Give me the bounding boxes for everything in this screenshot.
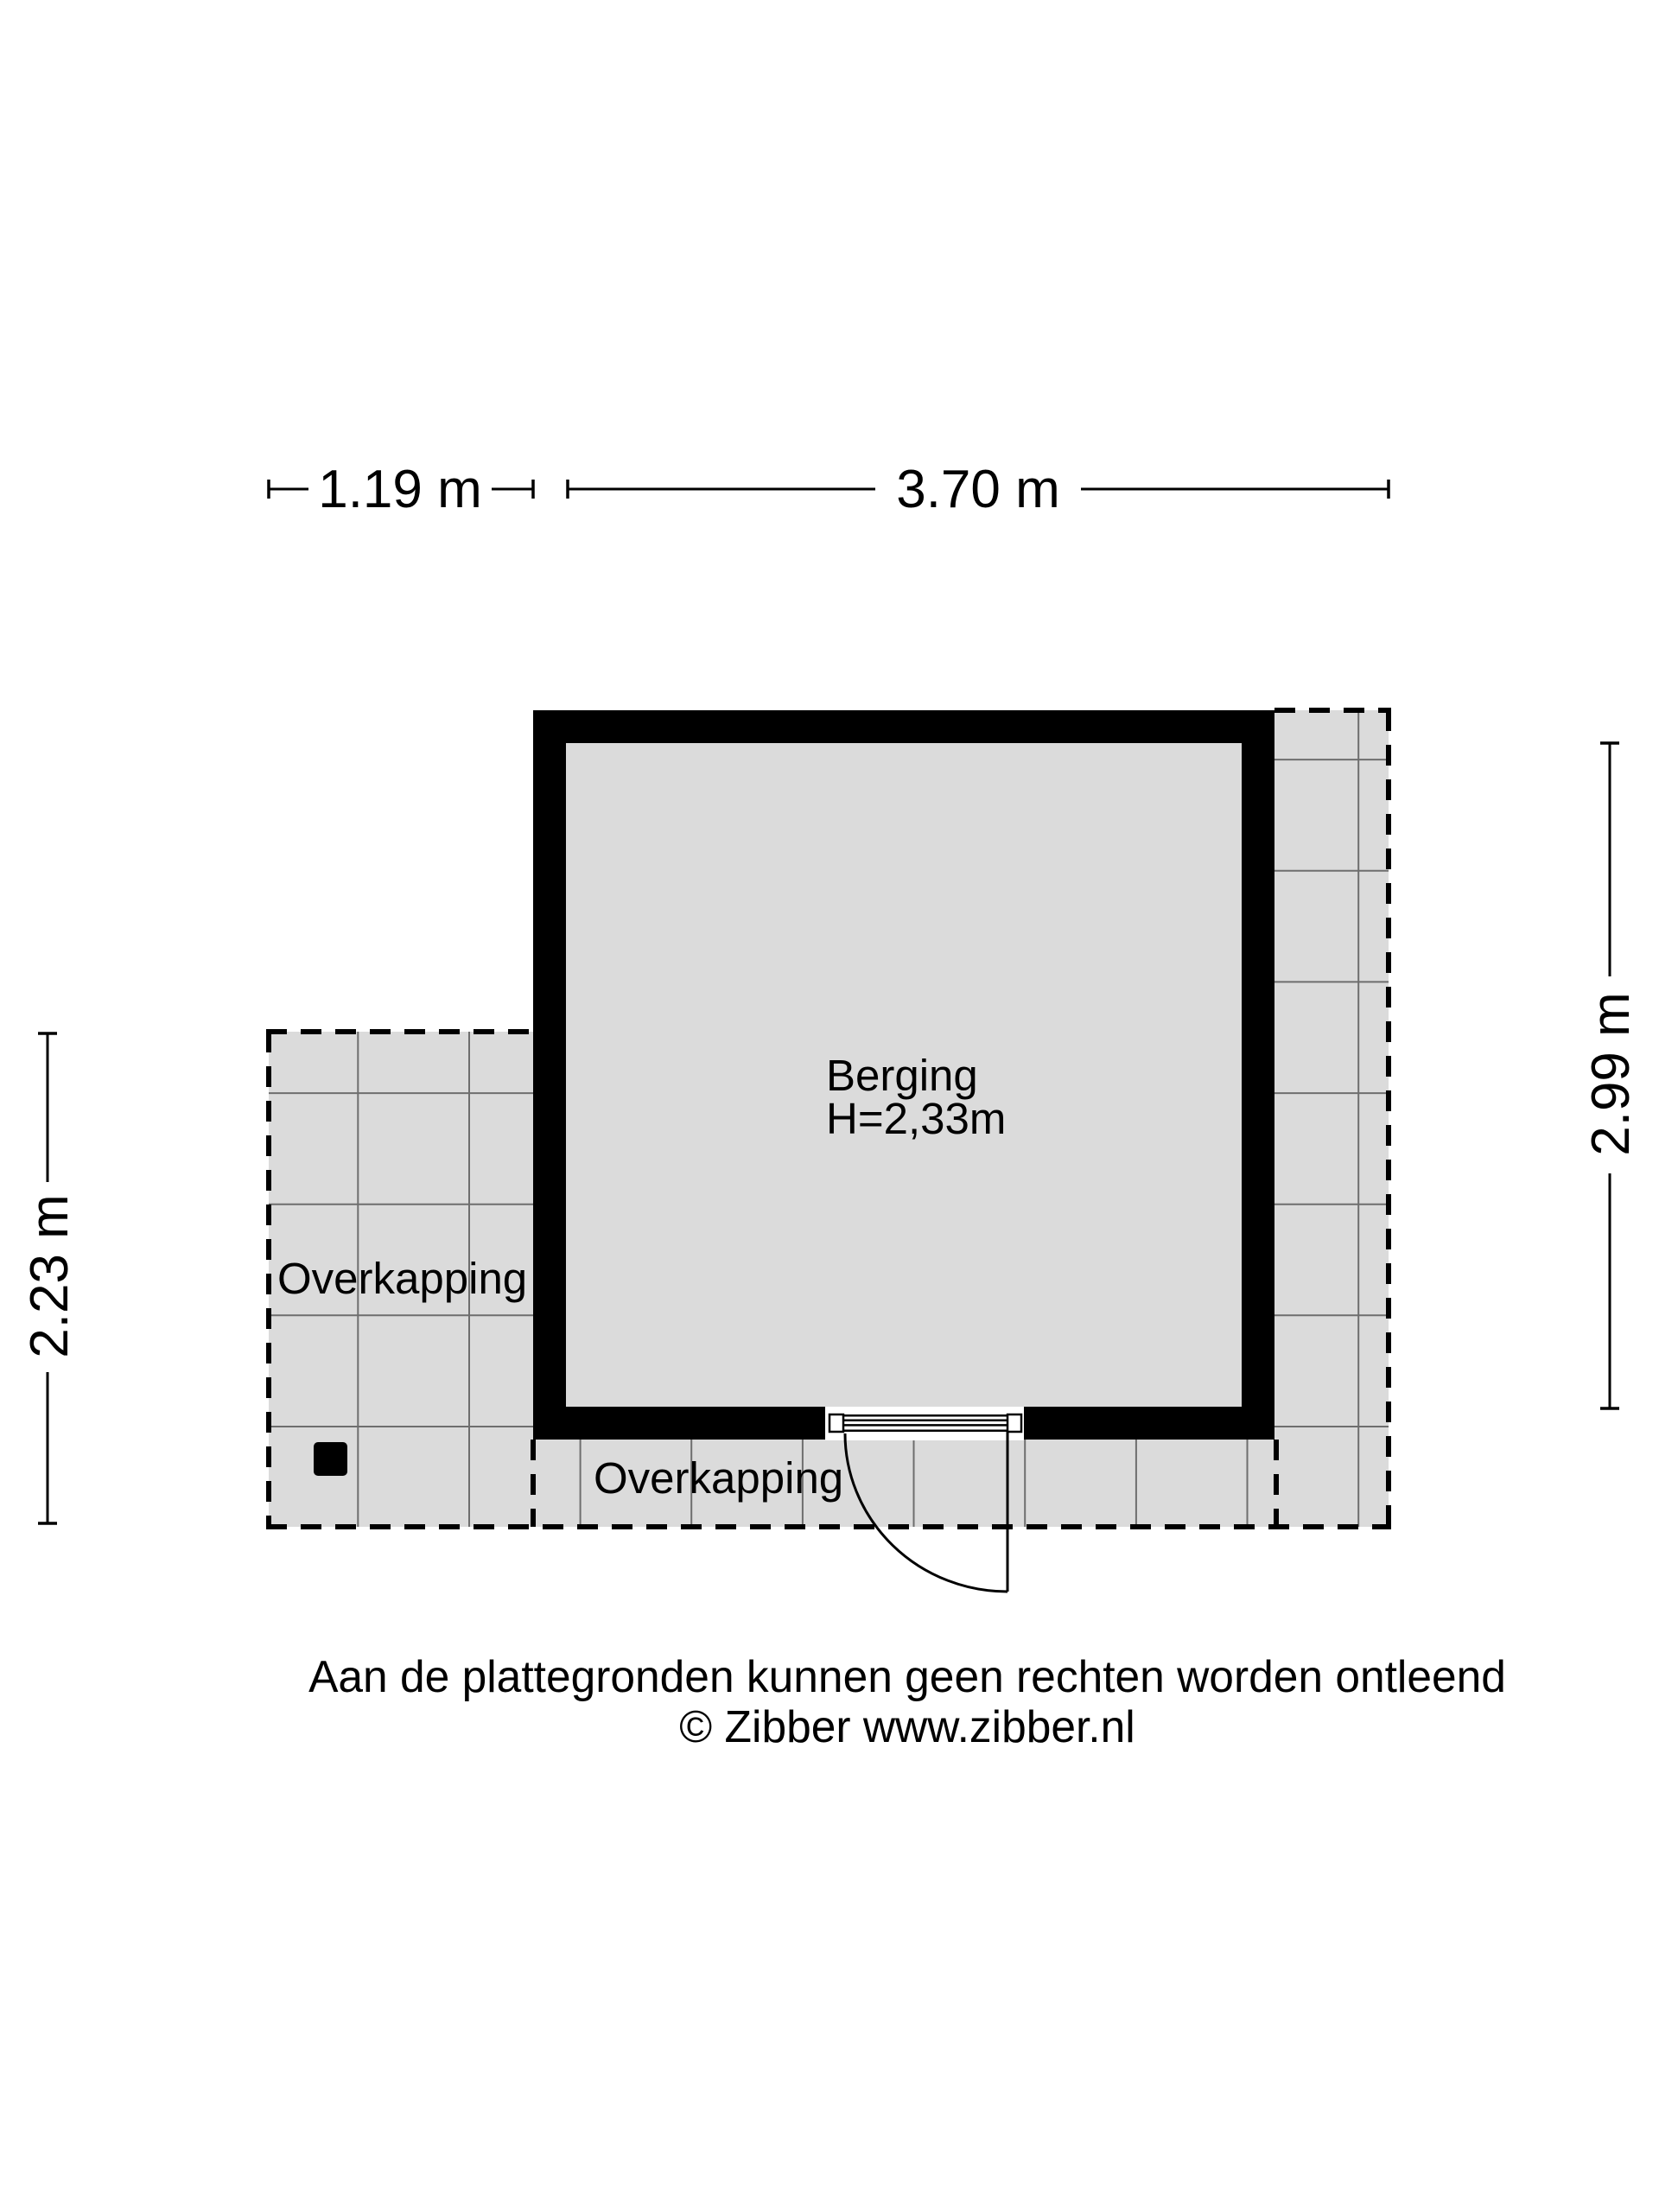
- svg-text:Overkapping: Overkapping: [277, 1254, 527, 1303]
- svg-text:1.19 m: 1.19 m: [318, 460, 482, 519]
- svg-text:© Zibber www.zibber.nl: © Zibber www.zibber.nl: [679, 1701, 1135, 1751]
- svg-text:Berging: Berging: [826, 1051, 978, 1100]
- svg-text:Aan de plattegronden kunnen ge: Aan de plattegronden kunnen geen rechten…: [308, 1651, 1506, 1701]
- svg-text:3.70 m: 3.70 m: [896, 460, 1060, 519]
- svg-text:H=2,33m: H=2,33m: [826, 1094, 1006, 1143]
- svg-text:2.99 m: 2.99 m: [1581, 992, 1641, 1156]
- svg-text:Overkapping: Overkapping: [594, 1453, 843, 1503]
- svg-text:2.23 m: 2.23 m: [20, 1194, 79, 1358]
